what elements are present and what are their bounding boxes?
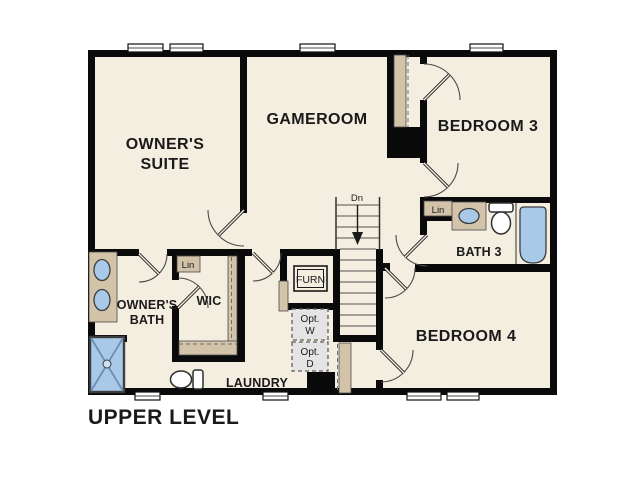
- window: [135, 392, 160, 400]
- shower-drain: [103, 360, 111, 368]
- wic-shelf-east: [228, 256, 237, 345]
- wic-shelf-south: [179, 341, 237, 355]
- bathtub: [516, 203, 546, 264]
- wic-linen-closet: Lin: [177, 256, 200, 272]
- gameroom-label: GAMEROOM: [267, 111, 368, 128]
- bath3-label: BATH 3: [456, 245, 501, 259]
- bath3-linen-closet: Lin: [424, 201, 452, 216]
- owners-bath-label-1: OWNER'S: [117, 298, 178, 312]
- plan-title: UPPER LEVEL: [88, 406, 239, 429]
- shower: [90, 337, 124, 392]
- window: [407, 392, 441, 400]
- floorplan-page: Dn Lin Lin: [0, 0, 640, 480]
- bath3-toilet: [489, 203, 513, 234]
- opt-dryer-letter: D: [306, 359, 313, 370]
- opt-washer-letter: W: [305, 326, 315, 337]
- bedroom4-label: BEDROOM 4: [416, 328, 517, 345]
- window: [447, 392, 479, 400]
- sink: [94, 260, 110, 281]
- window: [470, 44, 503, 52]
- optional-dryer: Opt. D: [292, 342, 328, 371]
- furnace-label: FURN: [296, 274, 325, 286]
- sink: [94, 290, 110, 311]
- upper-level-floorplan: Dn Lin Lin: [0, 0, 640, 480]
- optional-washer: Opt. W: [292, 309, 328, 340]
- bedroom3-label: BEDROOM 3: [438, 118, 539, 135]
- window: [128, 44, 163, 52]
- laundry-label: LAUNDRY: [226, 376, 289, 390]
- owners-suite-label-2: SUITE: [140, 156, 189, 173]
- understair-door-leaf: [339, 343, 351, 393]
- owners-bath-label-2: BATH: [130, 313, 165, 327]
- bedroom3-closet-shelf: [394, 55, 406, 127]
- wic-linen-label: Lin: [182, 260, 195, 271]
- owners-vanity: [89, 252, 117, 322]
- window: [300, 44, 335, 52]
- furnace: FURN: [294, 266, 327, 291]
- wic-label: WIC: [197, 294, 222, 308]
- stairs-down-label: Dn: [351, 193, 363, 204]
- sink: [459, 209, 479, 224]
- window: [263, 392, 288, 400]
- opt-washer-label: Opt.: [301, 314, 320, 325]
- bath3-linen-label: Lin: [432, 205, 445, 216]
- opt-dryer-label: Opt.: [301, 347, 320, 358]
- owners-suite-label-1: OWNER'S: [126, 136, 205, 153]
- bath3-vanity: [452, 202, 486, 230]
- window: [170, 44, 203, 52]
- owners-toilet: [171, 370, 204, 389]
